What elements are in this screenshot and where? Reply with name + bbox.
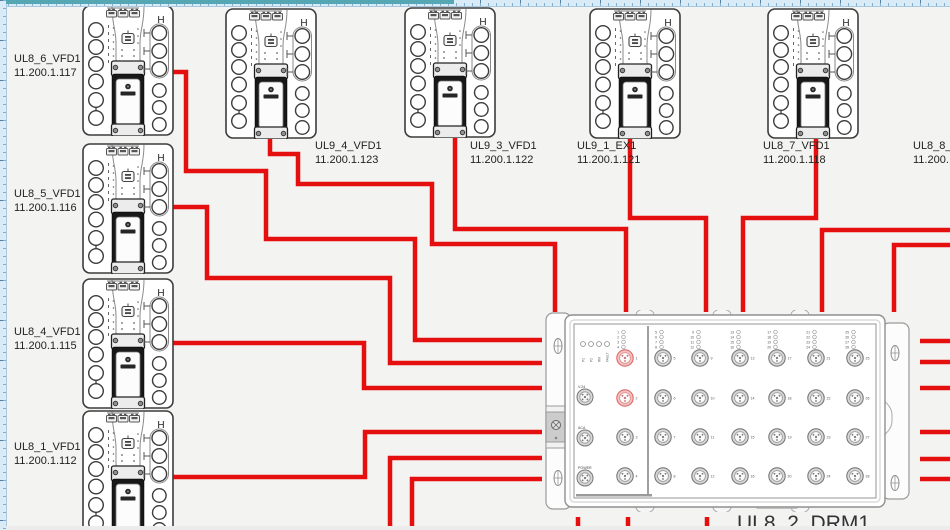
device-name: UL8_1_VFD1 (14, 441, 81, 455)
status-led-label: FAULT (605, 352, 609, 362)
vfd-device-icon: H (82, 410, 174, 530)
cable-right-edge-1-to-drm[interactable] (822, 230, 950, 312)
connector-circle (89, 57, 104, 72)
vfd-control-module (797, 64, 830, 139)
connector-circle (89, 40, 104, 55)
usb-port-icon (265, 37, 277, 47)
port-led-number: 9 (692, 330, 694, 334)
device-label-UL8_6_VFD1: UL8_6_VFD111.200.1.117 (14, 53, 81, 80)
port-led (622, 335, 626, 339)
port-led-number: 28 (845, 345, 849, 349)
port-number: 22 (827, 396, 831, 400)
drm-aux-port-v24[interactable] (577, 389, 593, 405)
device-UL9_3_VFD1[interactable]: H (404, 7, 496, 143)
connector-circle (660, 104, 674, 118)
ruler-left (0, 0, 7, 530)
status-led-P2 (589, 342, 594, 347)
port-led (813, 330, 817, 334)
device-label-UL8_8: UL8_8_V11.200. (913, 140, 950, 167)
connector-circle (411, 59, 426, 74)
port-led-number: 25 (845, 330, 849, 334)
port-led (660, 345, 664, 349)
port-led (622, 330, 626, 334)
status-led-P1 (581, 342, 586, 347)
usb-port-icon (122, 172, 134, 182)
vfd-device-icon: H (225, 8, 317, 139)
connector-circle (89, 195, 104, 210)
port-led-number: 7 (655, 340, 657, 344)
port-led-number: 3 (617, 340, 619, 344)
connector-circle (837, 47, 852, 62)
port-led-number: 13 (730, 330, 734, 334)
port-number: 19 (788, 435, 792, 439)
device-label-UL9_4_VFD1: UL9_4_VFD111.200.1.123 (315, 140, 382, 167)
device-name: UL8_7_VFD1 (763, 140, 830, 154)
vfd-device-icon: H (404, 7, 496, 138)
connector-circle (89, 479, 104, 494)
connector-circle (596, 114, 611, 129)
port-number: 26 (866, 396, 870, 400)
device-name: UL8_5_VFD1 (14, 188, 81, 202)
connector-circle (838, 104, 852, 118)
port-led-number: 10 (690, 335, 694, 339)
device-UL8_7_VFD1[interactable]: H (767, 8, 859, 144)
connector-circle (232, 77, 247, 92)
connector-circle (774, 43, 789, 58)
port-led-number: 12 (690, 345, 694, 349)
connector-circle (411, 76, 426, 91)
port-number: 25 (866, 356, 870, 360)
status-led-RM (597, 342, 602, 347)
port-led-number: 16 (730, 345, 734, 349)
vfd-control-module (255, 64, 288, 139)
connector-circle (296, 87, 310, 101)
connector-circle (411, 42, 426, 57)
connector-circle (474, 64, 489, 79)
connector-circle (660, 121, 674, 135)
port-led-number: 15 (730, 340, 734, 344)
vfd-control-module (112, 334, 145, 409)
connector-circle (660, 87, 674, 101)
port-led-number: 23 (806, 340, 810, 344)
port-led (852, 330, 856, 334)
device-label-UL8_7_VFD1: UL8_7_VFD111.200.1.118 (763, 140, 830, 167)
port-led (697, 330, 701, 334)
port-led-number: 21 (806, 330, 810, 334)
device-ip: 11.200.1.117 (14, 67, 81, 81)
port-led (737, 340, 741, 344)
device-ip: 11.200.1.121 (577, 154, 640, 168)
port-led (774, 335, 778, 339)
connector-circle (152, 164, 167, 179)
port-number: 16 (751, 474, 755, 478)
port-led (852, 345, 856, 349)
device-ip: 11.200. (913, 154, 950, 168)
vfd-control-module (619, 64, 652, 139)
vfd-control-module (112, 466, 145, 530)
connector-circle (152, 431, 167, 446)
vfd-device-icon: H (82, 5, 174, 136)
port-led (737, 330, 741, 334)
port-led (737, 345, 741, 349)
port-led-number: 26 (845, 335, 849, 339)
usb-port-icon (444, 36, 456, 46)
usb-port-icon (122, 439, 134, 449)
connector-circle (153, 239, 167, 253)
connector-circle (89, 93, 104, 108)
connector-circle (411, 25, 426, 40)
connector-circle (89, 296, 104, 311)
vfd-control-module (112, 61, 145, 136)
port-led (660, 330, 664, 334)
device-ip: 11.200.1.112 (14, 455, 81, 469)
port-led (813, 335, 817, 339)
port-number: 6 (674, 396, 676, 400)
port-led-number: 11 (690, 340, 694, 344)
port-led (774, 330, 778, 334)
port-number: 10 (711, 396, 715, 400)
device-UL8_1_VFD1[interactable]: H (82, 410, 174, 530)
connector-circle (153, 391, 167, 405)
connector-circle (153, 489, 167, 503)
connector-circle (153, 357, 167, 371)
port-led (697, 345, 701, 349)
status-led-label: RM (597, 357, 601, 362)
connector-circle (474, 28, 489, 43)
device-name: UL8_8_V (913, 140, 950, 154)
cable-ul8_4-to-drm[interactable] (172, 343, 542, 388)
port-led-number: 17 (767, 330, 771, 334)
port-number: 9 (711, 356, 713, 360)
connector-circle (89, 428, 104, 443)
connector-circle (89, 231, 104, 246)
device-name: UL9_3_VFD1 (470, 140, 537, 154)
port-led (697, 340, 701, 344)
connector-circle (89, 347, 104, 362)
port-led-number: 20 (767, 345, 771, 349)
connector-circle (838, 87, 852, 101)
connector-circle (659, 65, 674, 80)
connector-circle (232, 114, 247, 129)
usb-port-icon (122, 307, 134, 317)
device-ip: 11.200.1.116 (14, 202, 81, 216)
port-number: 24 (827, 474, 831, 478)
connector-circle (411, 113, 426, 128)
connector-circle (475, 120, 489, 134)
cable-drm-left-down-2[interactable] (412, 479, 542, 530)
port-led-number: 27 (845, 340, 849, 344)
port-led (774, 340, 778, 344)
connector-circle (296, 104, 310, 118)
connector-circle (89, 384, 104, 399)
vfd-control-module (434, 63, 467, 138)
connector-circle (153, 222, 167, 236)
vfd-device-icon: H (82, 143, 174, 274)
usb-port-icon (807, 37, 819, 47)
connector-circle (152, 449, 167, 464)
port-number: 5 (674, 356, 676, 360)
aux-port-label: V.24 (578, 385, 585, 389)
connector-circle (295, 65, 310, 80)
connector-circle (475, 86, 489, 100)
device-UL8_6_VFD1[interactable]: H (82, 5, 174, 141)
connector-circle (152, 335, 167, 350)
device-label-UL9_1_EX1: UL9_1_EX111.200.1.121 (577, 140, 640, 167)
vfd-device-icon: H (767, 8, 859, 139)
port-number: 14 (751, 396, 755, 400)
connector-circle (596, 77, 611, 92)
port-number: 4 (636, 474, 638, 478)
device-ip: 11.200.1.118 (763, 154, 830, 168)
port-number: 3 (636, 435, 638, 439)
port-number: 1 (636, 356, 638, 360)
connector-circle (774, 114, 789, 129)
connector-circle (837, 29, 852, 44)
aux-port-label: POWER (578, 466, 592, 470)
connector-circle (152, 26, 167, 41)
port-led-number: 8 (655, 345, 657, 349)
port-number: 2 (636, 396, 638, 400)
connector-circle (596, 60, 611, 75)
connector-circle (774, 77, 789, 92)
diagram-canvas[interactable]: HHHHHHHH UL8_6_VFD111.200.1.117UL8_5_VFD… (0, 0, 950, 530)
connector-circle (774, 60, 789, 75)
port-led-number: 14 (730, 335, 734, 339)
port-number: 18 (788, 396, 792, 400)
connector-circle (596, 26, 611, 41)
status-led-label: P1 (581, 358, 585, 362)
status-led-label: P2 (589, 358, 593, 362)
usb-port-icon (122, 34, 134, 44)
connector-circle (411, 95, 426, 110)
connector-circle (89, 74, 104, 89)
device-label-UL8_1_VFD1: UL8_1_VFD111.200.1.112 (14, 441, 81, 468)
status-led-FAULT (605, 342, 610, 347)
usb-port-icon (629, 37, 641, 47)
connector-circle (89, 366, 104, 381)
cable-ul8_1-to-drm[interactable] (172, 432, 542, 477)
port-number: 20 (788, 474, 792, 478)
port-led (852, 340, 856, 344)
connector-circle (596, 43, 611, 58)
connector-circle (659, 47, 674, 62)
connector-circle (152, 44, 167, 59)
port-led (660, 340, 664, 344)
connector-circle (153, 256, 167, 270)
connector-circle (89, 498, 104, 513)
connector-circle (152, 200, 167, 215)
device-ip: 11.200.1.123 (315, 154, 382, 168)
connector-circle (89, 330, 104, 345)
port-led-number: 2 (617, 335, 619, 339)
port-number: 15 (751, 435, 755, 439)
device-label-UL8_5_VFD1: UL8_5_VFD111.200.1.116 (14, 188, 81, 215)
connector-circle (295, 29, 310, 44)
connector-circle (152, 299, 167, 314)
port-number: 7 (674, 435, 676, 439)
drm-aux-port-power[interactable] (577, 470, 593, 486)
port-led (852, 335, 856, 339)
device-name: UL9_4_VFD1 (315, 140, 382, 154)
connector-circle (89, 462, 104, 477)
device-ip: 11.200.1.115 (14, 340, 81, 354)
connector-circle (89, 111, 104, 126)
device-UL8_5_VFD1[interactable]: H (82, 143, 174, 279)
port-number: 8 (674, 474, 676, 478)
port-number: 23 (827, 435, 831, 439)
connector-circle (232, 96, 247, 111)
connector-circle (153, 118, 167, 132)
device-label-UL8_4_VFD1: UL8_4_VFD111.200.1.115 (14, 326, 81, 353)
drm-chassis (565, 310, 885, 512)
connector-circle (837, 65, 852, 80)
port-led-number: 4 (617, 345, 619, 349)
connector-circle (89, 23, 104, 38)
vfd-device-icon: H (589, 8, 681, 139)
port-led-number: 1 (617, 330, 619, 334)
port-number: 17 (788, 356, 792, 360)
connector-circle (296, 121, 310, 135)
port-led (622, 340, 626, 344)
connector-circle (295, 47, 310, 62)
vfd-device-icon: H (82, 278, 174, 409)
port-led (813, 340, 817, 344)
connector-circle (232, 26, 247, 41)
port-led (813, 345, 817, 349)
connector-circle (89, 212, 104, 227)
port-led (697, 335, 701, 339)
horizontal-scrollbar-track[interactable] (6, 526, 950, 530)
port-number: 13 (751, 356, 755, 360)
device-UL9_4_VFD1[interactable]: H (225, 8, 317, 144)
connector-circle (152, 182, 167, 197)
connector-circle (152, 467, 167, 482)
port-led-number: 6 (655, 335, 657, 339)
horizontal-scrollbar-thumb[interactable] (6, 0, 454, 4)
port-led (622, 345, 626, 349)
connector-circle (475, 103, 489, 117)
cable-right-edge-2-to-drm[interactable] (894, 245, 950, 312)
aux-port-label: ACA (578, 426, 586, 430)
device-name: UL9_1_EX1 (577, 140, 640, 154)
port-led (737, 335, 741, 339)
connector-circle (596, 96, 611, 111)
port-led-number: 19 (767, 340, 771, 344)
connector-circle (89, 445, 104, 460)
connector-circle (838, 121, 852, 135)
device-label-UL9_3_VFD1: UL9_3_VFD111.200.1.122 (470, 140, 537, 167)
connector-circle (153, 374, 167, 388)
device-UL9_1_EX1[interactable]: H (589, 8, 681, 144)
port-led-number: 24 (806, 345, 810, 349)
connector-circle (153, 101, 167, 115)
device-UL8_4_VFD1[interactable]: H (82, 278, 174, 414)
connector-circle (152, 317, 167, 332)
connector-circle (89, 178, 104, 193)
port-led-number: 18 (767, 335, 771, 339)
connector-circle (774, 96, 789, 111)
port-number: 28 (866, 474, 870, 478)
port-number: 27 (866, 435, 870, 439)
port-led-number: 22 (806, 335, 810, 339)
device-ip: 11.200.1.122 (470, 154, 537, 168)
connector-circle (232, 60, 247, 75)
connector-circle (152, 62, 167, 77)
cable-ul9_1-to-drm[interactable] (630, 138, 706, 312)
device-name: UL8_6_VFD1 (14, 53, 81, 67)
connector-circle (774, 26, 789, 41)
connector-circle (89, 161, 104, 176)
connector-circle (89, 249, 104, 264)
connector-circle (659, 29, 674, 44)
vfd-control-module (112, 199, 145, 274)
port-number: 11 (711, 435, 715, 439)
port-number: 21 (827, 356, 831, 360)
drm-device-icon[interactable]: P1P2RMFAULT12345678910111213141516171819… (545, 310, 910, 512)
port-number: 12 (711, 474, 715, 478)
port-led-number: 5 (655, 330, 657, 334)
port-led (660, 335, 664, 339)
port-led (774, 345, 778, 349)
connector-circle (89, 313, 104, 328)
drm-aux-port-aca[interactable] (577, 430, 593, 446)
connector-circle (153, 506, 167, 520)
connector-circle (474, 46, 489, 61)
device-name: UL8_4_VFD1 (14, 326, 81, 340)
drm-right-bracket (882, 323, 909, 499)
connector-circle (232, 43, 247, 58)
connector-circle (153, 84, 167, 98)
